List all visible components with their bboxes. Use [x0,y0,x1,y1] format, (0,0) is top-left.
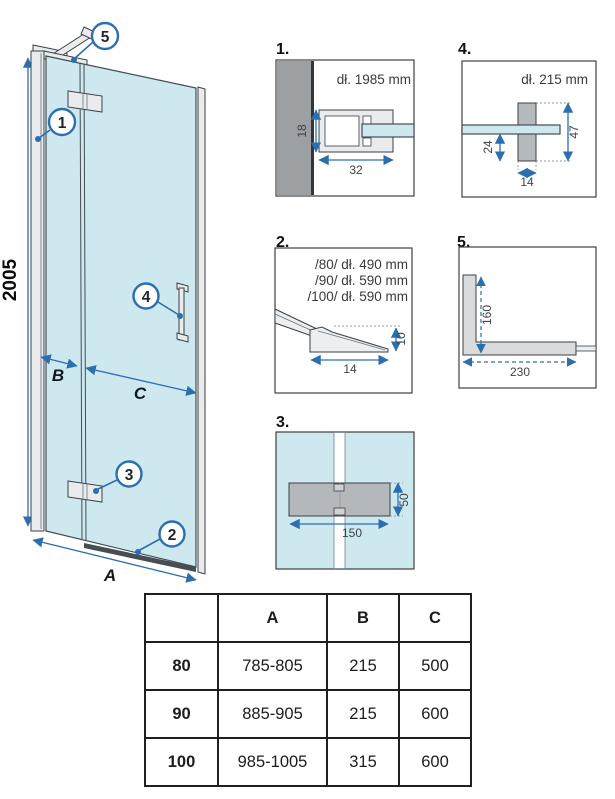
dimension-a-label: A [103,566,116,585]
table-header-a: A [218,594,327,642]
glass-section [462,125,560,134]
table-cell-a: 785-805 [218,642,327,690]
detail-4-label: 4. [458,41,471,58]
svg-text:50: 50 [397,493,411,507]
svg-text:5: 5 [101,29,110,46]
detail-1-label: 1. [276,41,289,58]
table-cell-c: 600 [399,738,471,786]
detail-5: 5. 160 230 [450,225,615,395]
detail-2: 2. /80/ dł. 490 mm /90/ dł. 590 mm /100/… [270,225,420,403]
table-cell-c: 600 [399,690,471,738]
detail-2-size-100: /100/ dł. 590 mm [307,289,408,304]
table-cell-a: 885-905 [218,690,327,738]
svg-text:160: 160 [480,305,494,325]
detail-4-title: dł. 215 mm [521,72,588,87]
dimension-c-label: C [134,384,147,403]
table-cell-a: 985-1005 [218,738,327,786]
dimension-2005: 2005 [0,58,28,526]
detail-4: 4. dł. 215 mm 24 47 14 [450,30,615,205]
svg-text:1: 1 [58,115,67,132]
svg-text:14: 14 [343,362,357,376]
table-cell-size: 80 [145,642,218,690]
svg-text:10: 10 [394,332,408,346]
table-cell-b: 215 [327,690,399,738]
table-cell-size: 90 [145,690,218,738]
table-cell-size: 100 [145,738,218,786]
table-header-empty [145,594,218,642]
hinge-drawing [289,483,390,516]
table-row: 90 885-905 215 600 [145,690,471,738]
table-header-b: B [327,594,399,642]
svg-text:24: 24 [481,140,495,154]
side-profile [198,87,205,574]
detail-3: 3. 50 150 [270,405,420,580]
page: 2005 [0,0,615,799]
table-row: 80 785-805 215 500 [145,642,471,690]
table-cell-b: 315 [327,738,399,786]
svg-text:4: 4 [142,289,151,306]
table-cell-c: 500 [399,642,471,690]
table-row: 100 985-1005 315 600 [145,738,471,786]
detail-1-title: dł. 1985 mm [337,72,411,87]
svg-text:32: 32 [349,163,363,177]
svg-text:18: 18 [295,124,309,138]
dimension-b-label: B [52,366,64,385]
table-cell-b: 215 [327,642,399,690]
glass-section [362,124,414,137]
table-header-row: A B C [145,594,471,642]
detail-2-size-90: /90/ dł. 590 mm [315,273,408,288]
svg-text:150: 150 [342,526,362,540]
detail-1: 1. dł. 1985 mm 18 32 [270,30,420,205]
svg-text:14: 14 [520,175,534,189]
svg-text:230: 230 [510,365,530,379]
detail-2-size-80: /80/ dł. 490 mm [315,257,408,272]
height-dimension-label: 2005 [0,258,21,301]
table-header-c: C [399,594,471,642]
size-table: A B C 80 785-805 215 500 90 885-905 215 … [144,593,472,787]
detail-3-label: 3. [276,414,289,431]
svg-text:3: 3 [125,467,134,484]
svg-text:47: 47 [567,125,581,139]
main-diagram: 2005 [0,0,245,600]
svg-text:2: 2 [168,527,177,544]
